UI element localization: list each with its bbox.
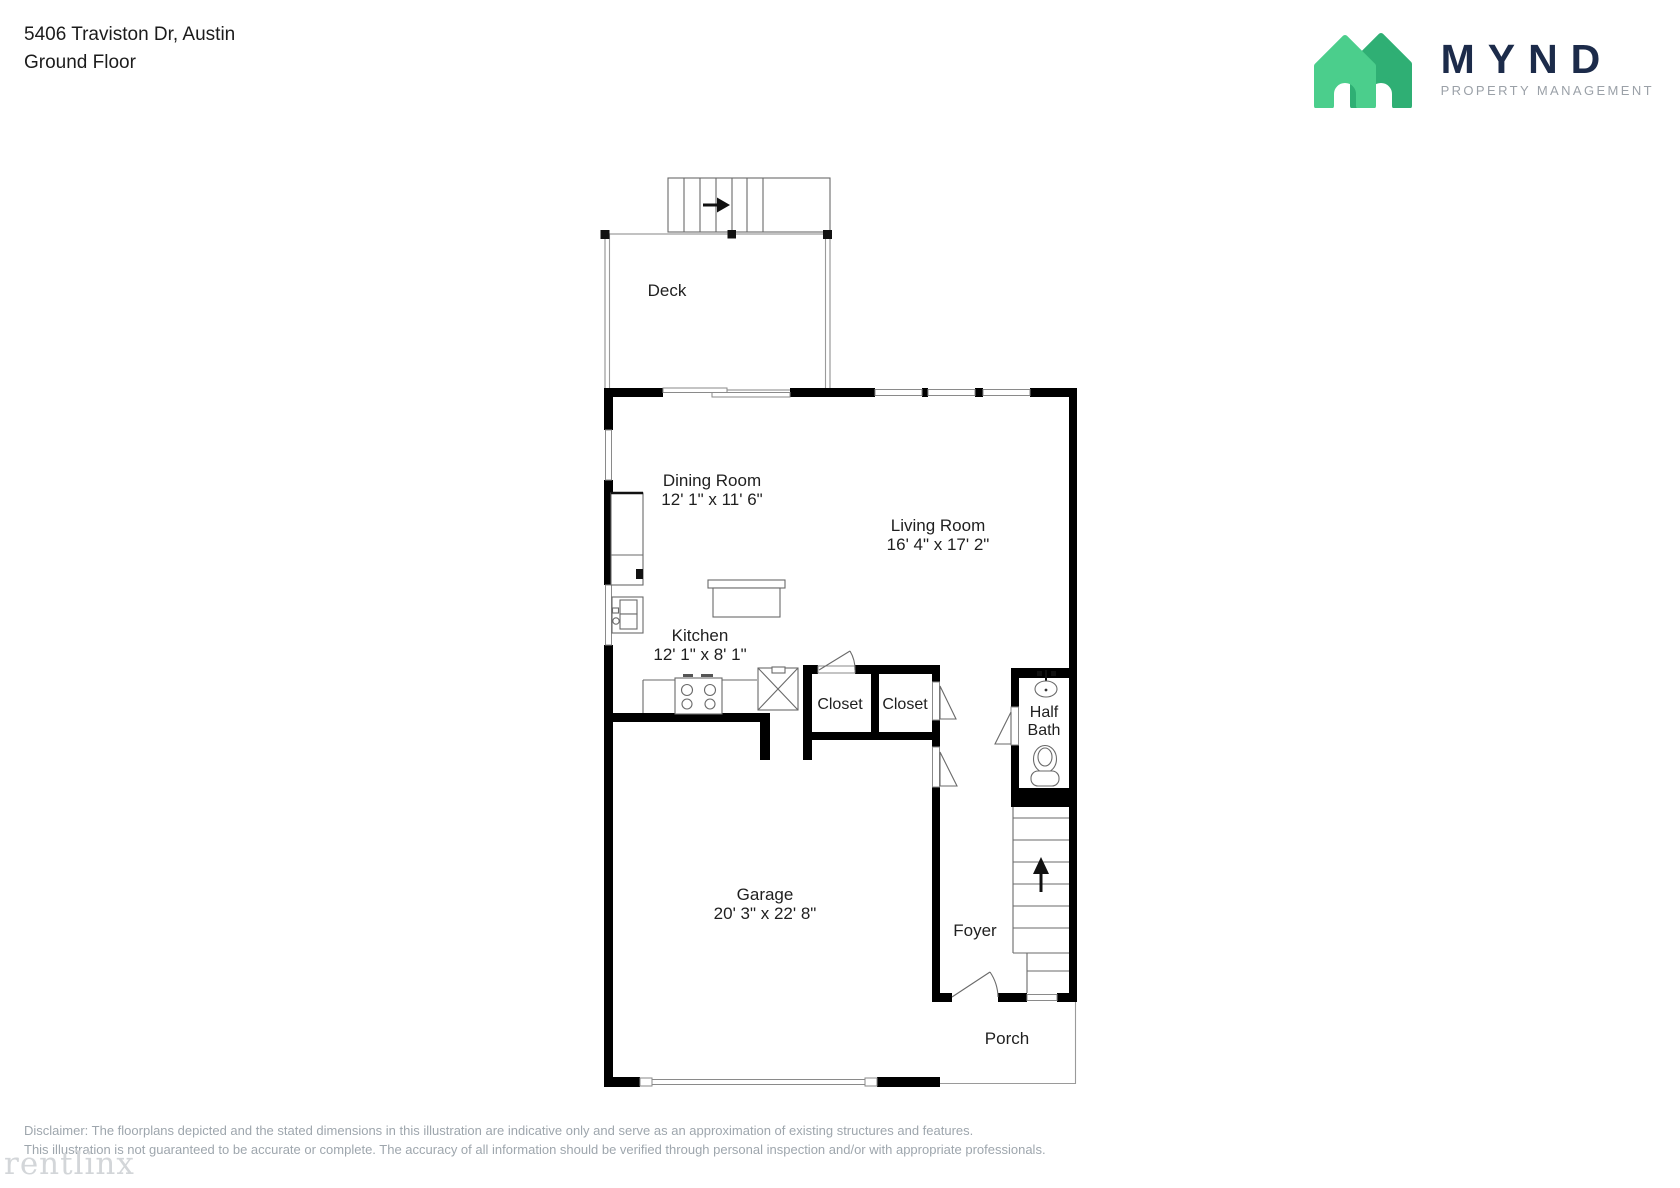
closet2-door <box>933 682 957 720</box>
living-room-dims: 16' 4" x 17' 2" <box>887 535 990 554</box>
closet2-label: Closet <box>882 696 928 713</box>
sliding-door-panel <box>663 388 727 393</box>
disclaimer: Disclaimer: The floorplans depicted and … <box>24 1122 1046 1159</box>
kitchen-label: Kitchen <box>672 626 729 645</box>
deck-label: Deck <box>648 281 687 300</box>
living-room-label: Living Room <box>891 516 986 535</box>
foyer-label: Foyer <box>953 921 997 940</box>
stove <box>675 674 722 714</box>
kitchen-dims: 12' 1" x 8' 1" <box>653 645 746 664</box>
half-bath-label-line1: Half <box>1030 704 1059 721</box>
rentlinx-watermark: rentlinx <box>4 1146 135 1182</box>
disclaimer-line1: Disclaimer: The floorplans depicted and … <box>24 1122 1046 1141</box>
half-bath-door <box>995 707 1019 745</box>
toilet <box>1031 746 1059 787</box>
floorplan-page: 5406 Traviston Dr, Austin Ground Floor M… <box>0 0 1680 1188</box>
deck-stairs <box>668 178 830 232</box>
garage-dims: 20' 3" x 22' 8" <box>714 904 817 923</box>
kitchen-counter <box>611 493 643 585</box>
window <box>1027 995 1057 1001</box>
sliding-door-panel <box>712 393 790 398</box>
porch-label: Porch <box>985 1029 1029 1048</box>
staircase <box>1013 807 1069 993</box>
front-door <box>952 972 998 997</box>
dining-room-label: Dining Room <box>663 471 761 490</box>
disclaimer-line2: This illustration is not guaranteed to b… <box>24 1141 1046 1160</box>
closet1-door <box>818 651 855 673</box>
window <box>875 390 922 396</box>
window <box>928 390 975 396</box>
deck <box>601 230 833 390</box>
closet1-label: Closet <box>817 696 863 713</box>
floorplan-drawing: Deck Dining Room 12' 1" x 11' 6" Living … <box>0 0 1680 1188</box>
kitchen-fixtures <box>611 493 798 714</box>
deck-post <box>728 230 737 239</box>
garage-label: Garage <box>737 885 794 904</box>
garage-door <box>640 1078 877 1086</box>
window <box>983 390 1030 396</box>
half-bath-label-line2: Bath <box>1028 722 1061 739</box>
kitchen-sink <box>612 597 643 633</box>
deck-post <box>601 230 610 239</box>
bathroom-sink <box>1035 670 1057 697</box>
deck-post <box>823 230 832 239</box>
garage-entry-door <box>933 747 958 787</box>
window <box>606 430 612 480</box>
kitchen-island <box>708 580 785 617</box>
refrigerator <box>758 667 798 710</box>
dining-room-dims: 12' 1" x 11' 6" <box>661 490 762 509</box>
window <box>606 585 612 645</box>
